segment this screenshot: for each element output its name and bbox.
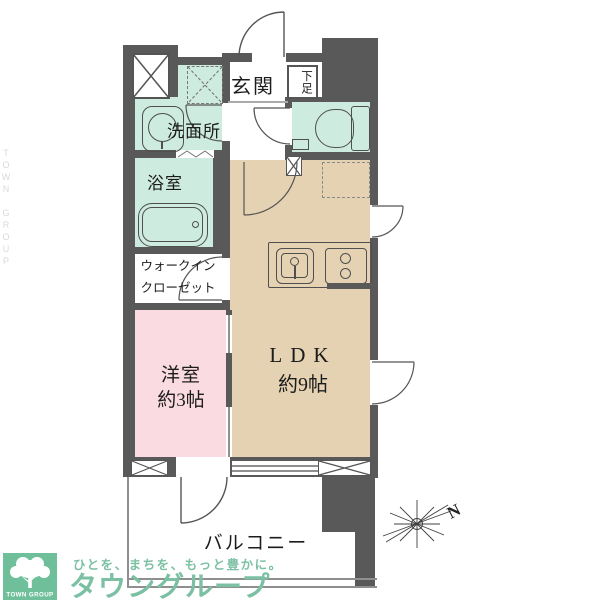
balcony-door-arc: [181, 477, 227, 523]
tree-icon: [10, 557, 50, 588]
compass-north-label: N: [444, 500, 464, 523]
pipe-space-x-icon: [287, 157, 300, 175]
label-ldk-size: 約9帖: [248, 368, 358, 397]
watermark-town-group: TOWN GROUP: [1, 148, 11, 268]
label-balcony: バルコニー: [196, 528, 316, 555]
plan-linework: N: [0, 0, 600, 600]
toilet-door-arc: [254, 108, 290, 144]
label-bathroom: 浴室: [147, 169, 183, 194]
compass-icon: [383, 500, 451, 548]
washer-x-icon: [188, 67, 222, 103]
label-ldk: LDK: [248, 343, 358, 368]
label-western-room: 洋室: [136, 360, 226, 387]
brand-name: タウングループ: [69, 565, 270, 600]
label-washroom: 洗面所: [167, 117, 221, 142]
label-entrance: 玄関: [231, 70, 275, 99]
shutter-x-icon: [132, 461, 167, 475]
right-lower-door-arc: [372, 362, 414, 404]
ldk-door-arc: [244, 162, 297, 215]
floor-plan-page: 下足: [0, 0, 600, 600]
town-group-logo: TOWN GROUP: [3, 553, 57, 600]
logo-text: TOWN GROUP: [6, 592, 53, 599]
label-western-room-size: 約3帖: [136, 385, 226, 412]
front-door-arc: [239, 12, 284, 57]
elevator-x-icon: [133, 54, 169, 98]
label-wic: ウォークイン クローゼット: [136, 256, 220, 300]
right-upper-door-arc: [372, 206, 403, 237]
bath-folding-door: [178, 151, 213, 157]
shutter-x-icon: [319, 461, 370, 475]
